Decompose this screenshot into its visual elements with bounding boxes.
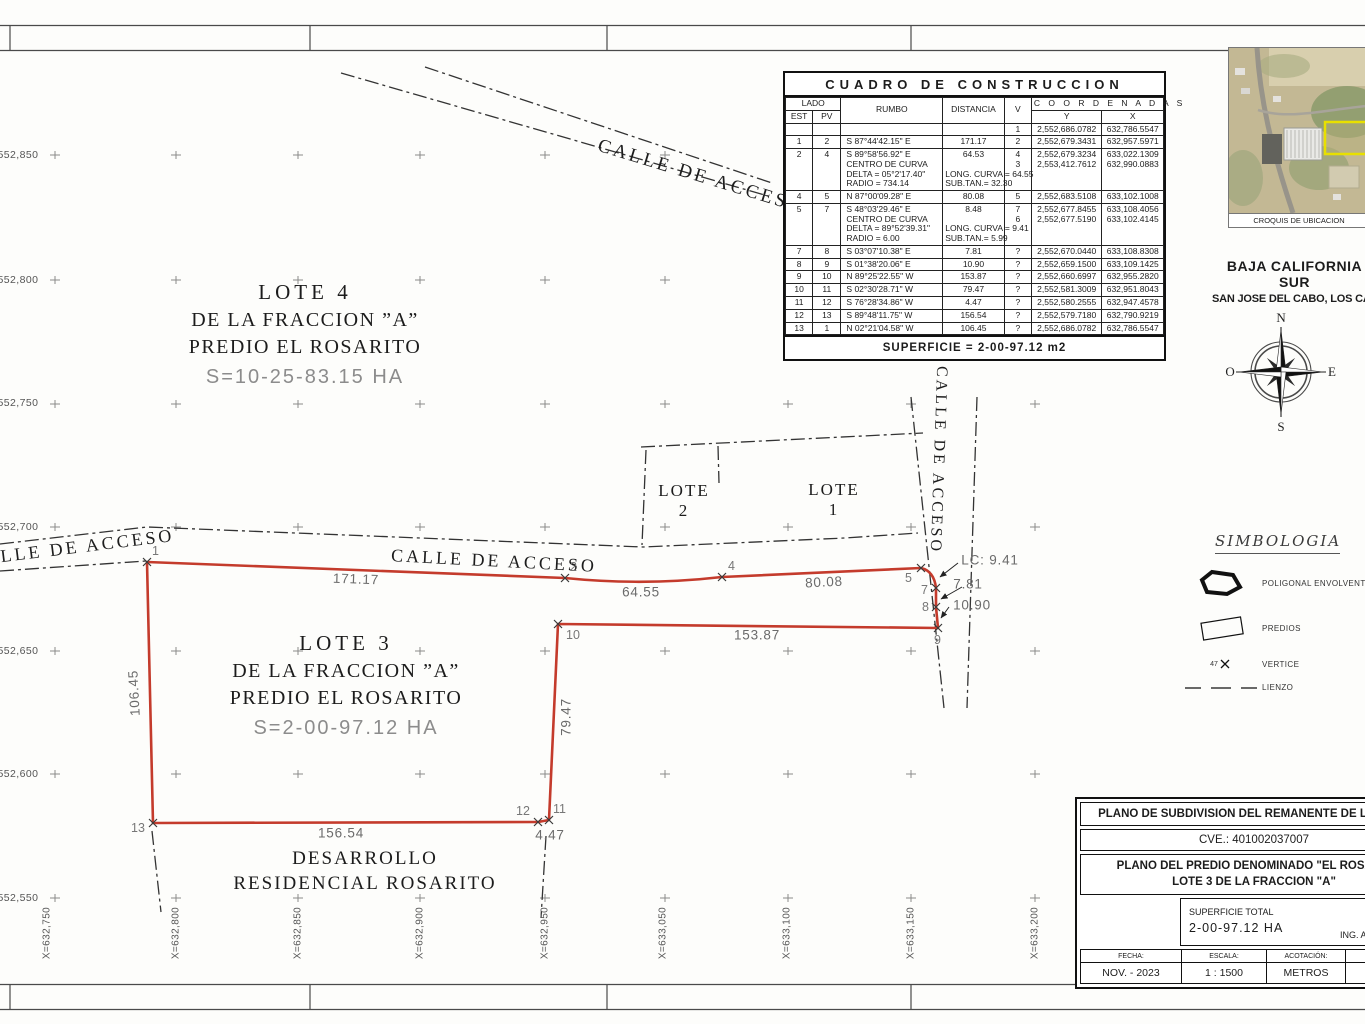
cell-rumbo: S 89°58'56.92" ECENTRO DE CURVADELTA = 0…: [841, 149, 943, 191]
cell-est: 10: [786, 284, 813, 297]
legend-label: LIENZO: [1262, 683, 1293, 692]
poligonal-envolvente-icon: [1180, 568, 1262, 598]
lote1-label: LOTE 1: [808, 480, 859, 520]
cell-x: 632,947.4578: [1102, 297, 1164, 310]
cell-rumbo: S 48°03'29.46" ECENTRO DE CURVADELTA = 8…: [841, 203, 943, 245]
cell-rumbo: S 01°38'20.06" E: [841, 258, 943, 271]
vertex-number: 10: [566, 628, 580, 642]
legend-label: POLIGONAL ENVOLVENTE: [1262, 579, 1365, 588]
y-axis-label: 2,552,600: [0, 768, 38, 780]
y-axis-label: 2,552,550: [0, 892, 38, 904]
cell-rumbo: [841, 123, 943, 136]
cell-distancia: 156.54: [943, 309, 1004, 322]
simbologia-legend: SIMBOLOGIA POLIGONAL ENVOLVENTE PREDIOS …: [1180, 532, 1365, 705]
title-block-mid: SUPERFICIE TOTAL 2-00-97.12 HA DIBUJÓ IN…: [1080, 898, 1365, 946]
acotacion-value: METROS: [1267, 963, 1345, 983]
dibujo-value: ING. AURELIO ACC: [1340, 930, 1365, 940]
vertex-number: 13: [131, 821, 145, 835]
cell-pv: 13: [813, 309, 841, 322]
measurement-label: 156.54: [318, 826, 364, 841]
location-title: BAJA CALIFORNIA SUR SAN JOSE DEL CABO, L…: [1212, 258, 1365, 305]
legend-label: PREDIOS: [1262, 624, 1301, 633]
cell-y: 2,552,580.2555: [1031, 297, 1102, 310]
lote1-number: 1: [808, 500, 859, 520]
x-axis-label: X=632,800: [171, 907, 182, 959]
vertex-number: 1: [152, 544, 159, 558]
cell-x: 632,951.8043: [1102, 284, 1164, 297]
lote2-number: 2: [658, 501, 709, 521]
cell-rumbo: S 03°07'10.38" E: [841, 245, 943, 258]
measurement-label: 10.90: [953, 598, 991, 613]
vertex-number: 5: [905, 571, 912, 585]
acotacion-label: ACOTACIÓN:: [1267, 950, 1345, 963]
numero-cell: NUMER AHR:: [1346, 950, 1365, 983]
croquis-caption: CROQUIS DE UBICACION: [1229, 213, 1365, 227]
vertex-number: 2: [570, 560, 577, 574]
legend-item-lienzo: LIENZO: [1180, 683, 1365, 692]
plan-name-line1: PLANO DEL PREDIO DENOMINADO "EL ROSARIT: [1083, 859, 1365, 875]
cell-est: 8: [786, 258, 813, 271]
cell-y: 2,552,683.5108: [1031, 191, 1102, 204]
cell-rumbo: N 87°00'09.28" E: [841, 191, 943, 204]
compass-e: E: [1328, 364, 1336, 379]
col-v: V: [1004, 98, 1031, 124]
lote2-name: LOTE: [658, 481, 709, 501]
escala-label: ESCALA:: [1182, 950, 1266, 963]
croquis-panel: CROQUIS DE UBICACION: [1228, 47, 1365, 228]
cell-pv: 5: [813, 191, 841, 204]
lote4-line3: PREDIO EL ROSARITO: [105, 336, 505, 359]
cell-pv: [813, 123, 841, 136]
escala-cell: ESCALA: 1 : 1500: [1182, 950, 1267, 983]
table-row: 910N 89°25'22.55" W153.87?2,552,660.6997…: [786, 271, 1164, 284]
fecha-value: NOV. - 2023: [1081, 963, 1181, 983]
cell-y: 2,552,686.0782: [1031, 123, 1102, 136]
col-pv: PV: [813, 110, 841, 123]
lote3-title: LOTE 3: [146, 631, 546, 656]
cell-x: 632,786.5547: [1102, 322, 1164, 335]
desarrollo-label: DESARROLLO RESIDENCIAL ROSARITO: [233, 847, 496, 896]
legend-item-predios: PREDIOS: [1180, 611, 1365, 645]
cell-pv: 10: [813, 271, 841, 284]
cell-rumbo: N 02°21'04.58" W: [841, 322, 943, 335]
cell-v: ?: [1004, 245, 1031, 258]
table-row: 12,552,686.0782632,786.5547: [786, 123, 1164, 136]
compass-o: O: [1225, 364, 1234, 379]
road-top-diagonal-a: [425, 67, 772, 183]
legend-item-poligonal: POLIGONAL ENVOLVENTE: [1180, 568, 1365, 598]
compass-s: S: [1277, 419, 1284, 434]
cell-x: 633,022.1309632,990.0883: [1102, 149, 1164, 191]
measurement-label: 153.87: [734, 628, 780, 643]
cell-est: 12: [786, 309, 813, 322]
cell-v: ?: [1004, 271, 1031, 284]
measurement-label: LC: 9.41: [961, 553, 1018, 568]
lote4-label: LOTE 4 DE LA FRACCION ”A” PREDIO EL ROSA…: [105, 280, 505, 389]
x-axis-label: X=633,150: [906, 907, 917, 959]
table-row: 1011S 02°30'28.71" W79.47?2,552,581.3009…: [786, 284, 1164, 297]
cell-x: 633,102.1008: [1102, 191, 1164, 204]
croquis-parcel-highlight: [1325, 122, 1365, 154]
measurement-label: 171.17: [333, 571, 380, 588]
cell-x: 633,108.8308: [1102, 245, 1164, 258]
cell-distancia: 80.08: [943, 191, 1004, 204]
col-distancia: DISTANCIA: [943, 98, 1004, 124]
numero-label: NUMER: [1346, 950, 1365, 963]
cell-est: 5: [786, 203, 813, 245]
superficie-box: SUPERFICIE TOTAL 2-00-97.12 HA DIBUJÓ IN…: [1180, 898, 1365, 946]
cell-y: 2,552,670.0440: [1031, 245, 1102, 258]
lote3-label: LOTE 3 DE LA FRACCION ”A” PREDIO EL ROSA…: [146, 631, 546, 740]
col-lado: LADO: [786, 98, 841, 111]
predios-icon: [1180, 611, 1262, 645]
cell-distancia: 4.47: [943, 297, 1004, 310]
table-row: 131N 02°21'04.58" W106.45?2,552,686.0782…: [786, 322, 1164, 335]
cell-v: 1: [1004, 123, 1031, 136]
cell-rumbo: S 76°28'34.86" W: [841, 297, 943, 310]
y-axis-label: 2,552,650: [0, 645, 38, 657]
table-row: 89S 01°38'20.06" E10.90?2,552,659.150063…: [786, 258, 1164, 271]
cell-v: 2: [1004, 136, 1031, 149]
measurement-label: 64.55: [622, 585, 660, 600]
cell-x: 632,955.2820: [1102, 271, 1164, 284]
cell-pv: 7: [813, 203, 841, 245]
cell-distancia: [943, 123, 1004, 136]
cell-est: 1: [786, 136, 813, 149]
fecha-cell: FECHA: NOV. - 2023: [1081, 950, 1182, 983]
construction-table-grid: LADO RUMBO DISTANCIA V C O O R D E N A D…: [785, 97, 1164, 335]
lote4-line2: DE LA FRACCION ”A”: [105, 309, 505, 332]
cell-distancia: 8.48LONG. CURVA = 9.41SUB.TAN.= 5.99: [943, 203, 1004, 245]
legend-item-vertice: 47 VERTICE: [1180, 658, 1365, 670]
superficie-label: SUPERFICIE TOTAL: [1189, 907, 1274, 917]
cell-v: ?: [1004, 322, 1031, 335]
lote3-line2: DE LA FRACCION ”A”: [146, 660, 546, 683]
cell-distancia: 79.47: [943, 284, 1004, 297]
cell-distancia: 106.45: [943, 322, 1004, 335]
cell-v: ?: [1004, 297, 1031, 310]
compass-n: N: [1276, 310, 1286, 325]
title-block-plan-name: PLANO DEL PREDIO DENOMINADO "EL ROSARIT …: [1080, 854, 1365, 895]
table-row: 1213S 89°48'11.75" W156.54?2,552,579.718…: [786, 309, 1164, 322]
cell-pv: 4: [813, 149, 841, 191]
title-block-mid-spacer: [1080, 898, 1180, 946]
measurement-label: 4.47: [535, 828, 564, 843]
title-block-cve: CVE.: 401002037007: [1080, 829, 1365, 851]
x-axis-label: X=632,850: [293, 907, 304, 959]
table-row: 24S 89°58'56.92" ECENTRO DE CURVADELTA =…: [786, 149, 1164, 191]
vertex-number: 8: [922, 600, 929, 614]
y-axis-label: 2,552,850: [0, 149, 38, 161]
cell-pv: 9: [813, 258, 841, 271]
lote1-name: LOTE: [808, 480, 859, 500]
compass-star-cardinal: [1239, 330, 1323, 414]
col-y: Y: [1031, 110, 1102, 123]
fecha-label: FECHA:: [1081, 950, 1181, 963]
vertice-sample-number: 47: [1210, 661, 1218, 668]
lote-box-top: [641, 433, 923, 447]
cell-y: 2,552,677.84552,552,677.5190: [1031, 203, 1102, 245]
construction-table-title: CUADRO DE CONSTRUCCION: [785, 73, 1164, 97]
cell-distancia: 7.81: [943, 245, 1004, 258]
cell-rumbo: S 89°48'11.75" W: [841, 309, 943, 322]
cell-pv: 1: [813, 322, 841, 335]
table-row: 45N 87°00'09.28" E80.0852,552,683.510863…: [786, 191, 1164, 204]
vertex-number: 9: [934, 633, 941, 647]
table-row: 12S 87°44'42.15" E171.1722,552,679.34316…: [786, 136, 1164, 149]
desarrollo-line1: DESARROLLO: [233, 847, 496, 872]
cell-y: 2,552,579.7180: [1031, 309, 1102, 322]
cell-x: 632,786.5547: [1102, 123, 1164, 136]
y-axis-label: 2,552,800: [0, 274, 38, 286]
measurement-label: 79.47: [559, 698, 574, 736]
table-row: 78S 03°07'10.38" E7.81?2,552,670.0440633…: [786, 245, 1164, 258]
cell-x: 633,109.1425: [1102, 258, 1164, 271]
cell-y: 2,552,679.32342,553,412.7612: [1031, 149, 1102, 191]
vertex-number: 12: [516, 804, 530, 818]
cell-v: ?: [1004, 258, 1031, 271]
cell-est: 13: [786, 322, 813, 335]
vertex-number: 11: [553, 802, 566, 816]
lote-box-divider: [718, 446, 719, 483]
x-axis-label: X=632,950: [540, 907, 551, 959]
cell-y: 2,552,679.3431: [1031, 136, 1102, 149]
cell-x: 633,108.4056633,102.4145: [1102, 203, 1164, 245]
lienzo-icon: [1180, 685, 1262, 691]
cell-est: 4: [786, 191, 813, 204]
cell-v: 5: [1004, 191, 1031, 204]
location-city: SAN JOSE DEL CABO, LOS CABOS B.C.S.: [1212, 293, 1365, 305]
cell-est: [786, 123, 813, 136]
table-row: 57S 48°03'29.46" ECENTRO DE CURVADELTA =…: [786, 203, 1164, 245]
superficie-value: 2-00-97.12 HA: [1189, 921, 1283, 935]
cell-v: ?: [1004, 309, 1031, 322]
construction-table: CUADRO DE CONSTRUCCION LADO RUMBO DISTAN…: [783, 71, 1166, 361]
construction-table-body: 12,552,686.0782632,786.554712S 87°44'42.…: [786, 123, 1164, 335]
cell-pv: 11: [813, 284, 841, 297]
stub-below-13: [152, 831, 161, 912]
x-axis-label: X=632,750: [42, 907, 53, 959]
col-rumbo: RUMBO: [841, 98, 943, 124]
cell-y: 2,552,660.6997: [1031, 271, 1102, 284]
plan-name-line2: LOTE 3 DE LA FRACCION "A": [1083, 875, 1365, 891]
cell-est: 9: [786, 271, 813, 284]
stub-below-11: [541, 836, 546, 918]
cell-rumbo: N 89°25'22.55" W: [841, 271, 943, 284]
legend-label: VERTICE: [1262, 660, 1299, 669]
table-row: 1112S 76°28'34.86" W4.47?2,552,580.25556…: [786, 297, 1164, 310]
title-block-bottom: FECHA: NOV. - 2023 ESCALA: 1 : 1500 ACOT…: [1080, 949, 1365, 984]
col-est: EST: [786, 110, 813, 123]
vertice-icon: 47: [1180, 658, 1262, 670]
x-axis-label: X=633,050: [658, 907, 669, 959]
superficie-footer: SUPERFICIE = 2-00-97.12 m2: [785, 335, 1164, 359]
cell-pv: 12: [813, 297, 841, 310]
acotacion-cell: ACOTACIÓN: METROS: [1267, 950, 1346, 983]
cell-x: 632,957.5971: [1102, 136, 1164, 149]
cell-y: 2,552,686.0782: [1031, 322, 1102, 335]
cell-distancia: 10.90: [943, 258, 1004, 271]
measurement-label: 106.45: [125, 670, 142, 717]
x-axis-label: X=632,900: [415, 907, 426, 959]
lote3-line3: PREDIO EL ROSARITO: [146, 687, 546, 710]
simbologia-title: SIMBOLOGIA: [1215, 532, 1340, 554]
title-block: PLANO DE SUBDIVISION DEL REMANENTE DE LA…: [1075, 797, 1365, 989]
cell-rumbo: S 87°44'42.15" E: [841, 136, 943, 149]
desarrollo-line2: RESIDENCIAL ROSARITO: [233, 872, 496, 897]
cell-est: 2: [786, 149, 813, 191]
cell-x: 632,790.9219: [1102, 309, 1164, 322]
title-block-row1: PLANO DE SUBDIVISION DEL REMANENTE DE LA…: [1080, 802, 1365, 826]
vertex-number: 7: [921, 583, 928, 597]
escala-value: 1 : 1500: [1182, 963, 1266, 983]
col-coordenadas: C O O R D E N A D A S: [1031, 98, 1163, 111]
cell-y: 2,552,581.3009: [1031, 284, 1102, 297]
lote-box-left: [642, 450, 646, 545]
cell-y: 2,552,659.1500: [1031, 258, 1102, 271]
location-region: BAJA CALIFORNIA SUR: [1212, 258, 1365, 290]
measurement-label: 7.81: [953, 577, 982, 592]
cell-rumbo: S 02°30'28.71" W: [841, 284, 943, 297]
cell-est: 7: [786, 245, 813, 258]
y-axis-label: 2,552,750: [0, 397, 38, 409]
cell-distancia: 153.87: [943, 271, 1004, 284]
x-axis-label: X=633,200: [1030, 907, 1041, 959]
y-axis-label: 2,552,700: [0, 521, 38, 533]
cell-pv: 2: [813, 136, 841, 149]
lote4-title: LOTE 4: [105, 280, 505, 305]
cell-pv: 8: [813, 245, 841, 258]
lote3-area: S=2-00-97.12 HA: [146, 717, 546, 740]
cell-v: ?: [1004, 284, 1031, 297]
numero-value: AHR:: [1346, 963, 1365, 983]
cell-distancia: 171.17: [943, 136, 1004, 149]
cell-distancia: 64.53LONG. CURVA = 64.55SUB.TAN.= 32.30: [943, 149, 1004, 191]
vertex-number: 4: [728, 559, 735, 573]
x-axis-label: X=633,100: [782, 907, 793, 959]
col-x: X: [1102, 110, 1164, 123]
compass-rose: N S E O: [1225, 308, 1337, 438]
measurement-label: 80.08: [805, 574, 844, 591]
cell-est: 11: [786, 297, 813, 310]
croquis-satellite-image: [1229, 48, 1365, 213]
lote4-area: S=10-25-83.15 HA: [105, 366, 505, 389]
lote2-label: LOTE 2: [658, 481, 709, 521]
